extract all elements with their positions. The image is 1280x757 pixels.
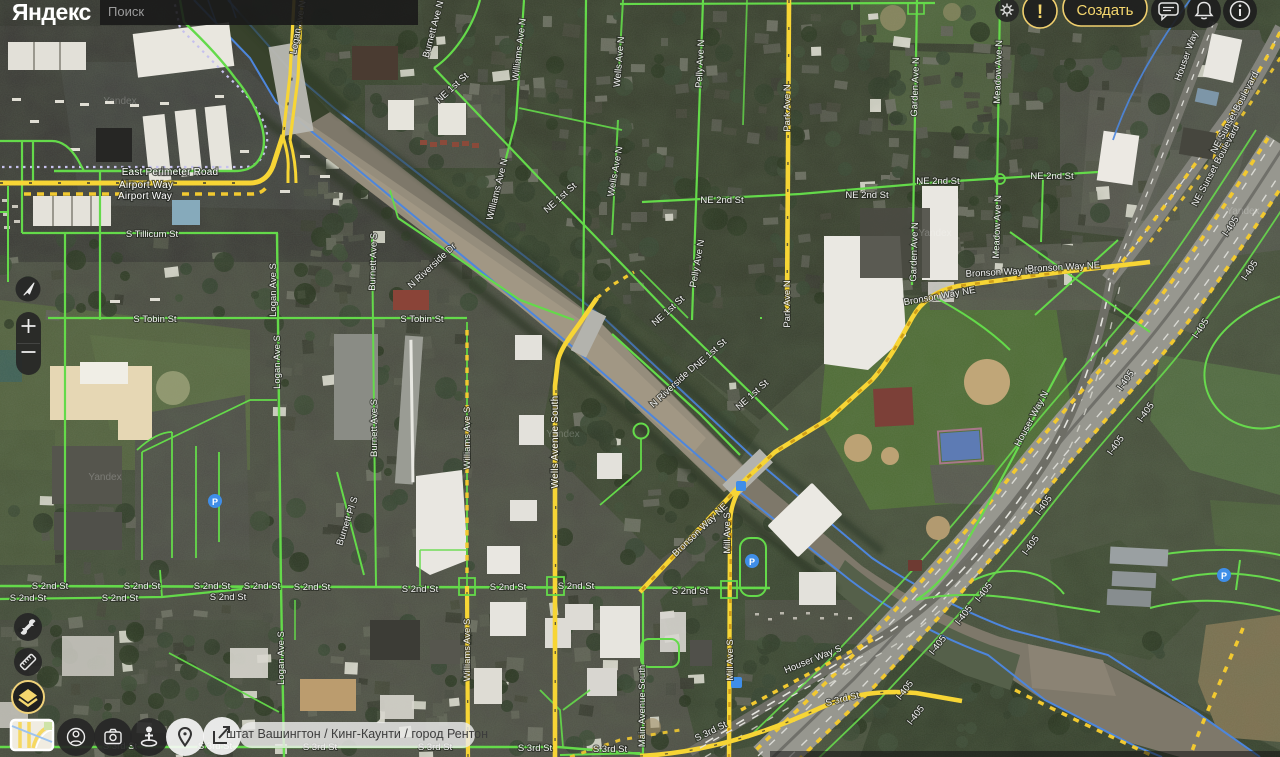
svg-text:штат Вашингтон / Кинг-Каунти /: штат Вашингтон / Кинг-Каунти / город Рен… <box>226 727 488 741</box>
svg-text:Поиск: Поиск <box>108 4 144 19</box>
svg-text:!: ! <box>1037 2 1043 23</box>
svg-text:Яндекс: Яндекс <box>12 0 92 25</box>
svg-text:Создать: Создать <box>1076 2 1133 19</box>
